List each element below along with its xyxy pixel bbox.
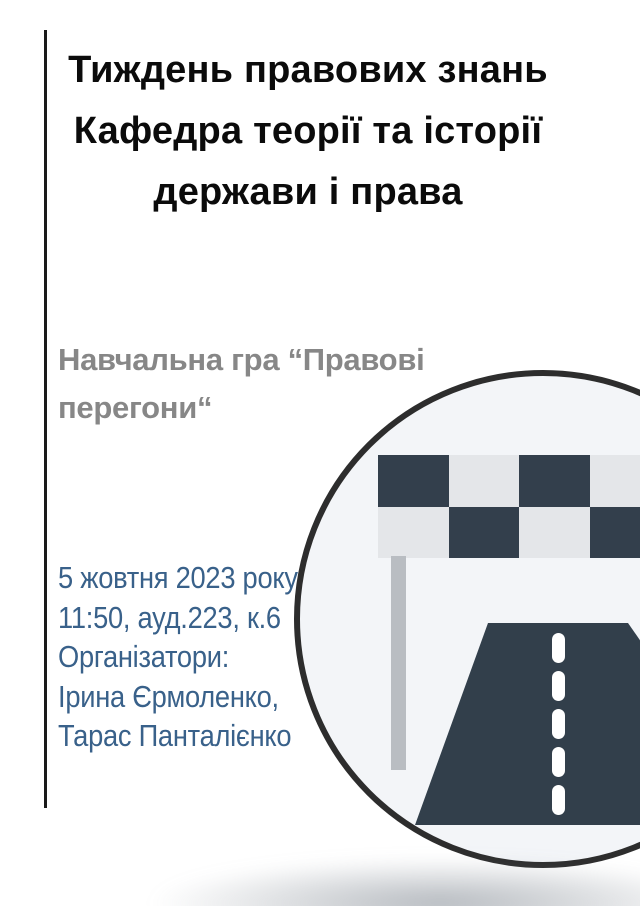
- flag-square: [590, 507, 640, 559]
- poster-page: Тиждень правових знань Кафедра теорії та…: [0, 0, 640, 906]
- subtitle-line-1: Навчальна гра “Правові: [58, 336, 488, 384]
- flag-square: [449, 455, 520, 507]
- race-illustration-badge: [294, 370, 640, 868]
- road-dash: [552, 671, 565, 701]
- organizer-name-2: Тарас Панталієнко: [58, 716, 348, 756]
- left-border-line: [44, 30, 47, 808]
- road-center-line-icon: [552, 633, 565, 815]
- flag-pole-icon: [391, 556, 406, 770]
- flag-square: [590, 455, 640, 507]
- flag-square: [378, 455, 449, 507]
- title-line-2: Кафедра теорії та історії: [52, 101, 564, 162]
- title-line-3: держави і права: [52, 162, 564, 223]
- flag-square: [519, 507, 590, 559]
- bottom-shadow: [150, 858, 640, 906]
- title-line-1: Тиждень правових знань: [52, 40, 564, 101]
- flag-square: [449, 507, 520, 559]
- road-icon: [300, 376, 640, 862]
- road-dash: [552, 633, 565, 663]
- road-dash: [552, 747, 565, 777]
- road-dash: [552, 709, 565, 739]
- road-dash: [552, 785, 565, 815]
- flag-square: [519, 455, 590, 507]
- checkered-flag-icon: [378, 455, 640, 558]
- flag-square: [378, 507, 449, 559]
- poster-title: Тиждень правових знань Кафедра теорії та…: [52, 40, 564, 223]
